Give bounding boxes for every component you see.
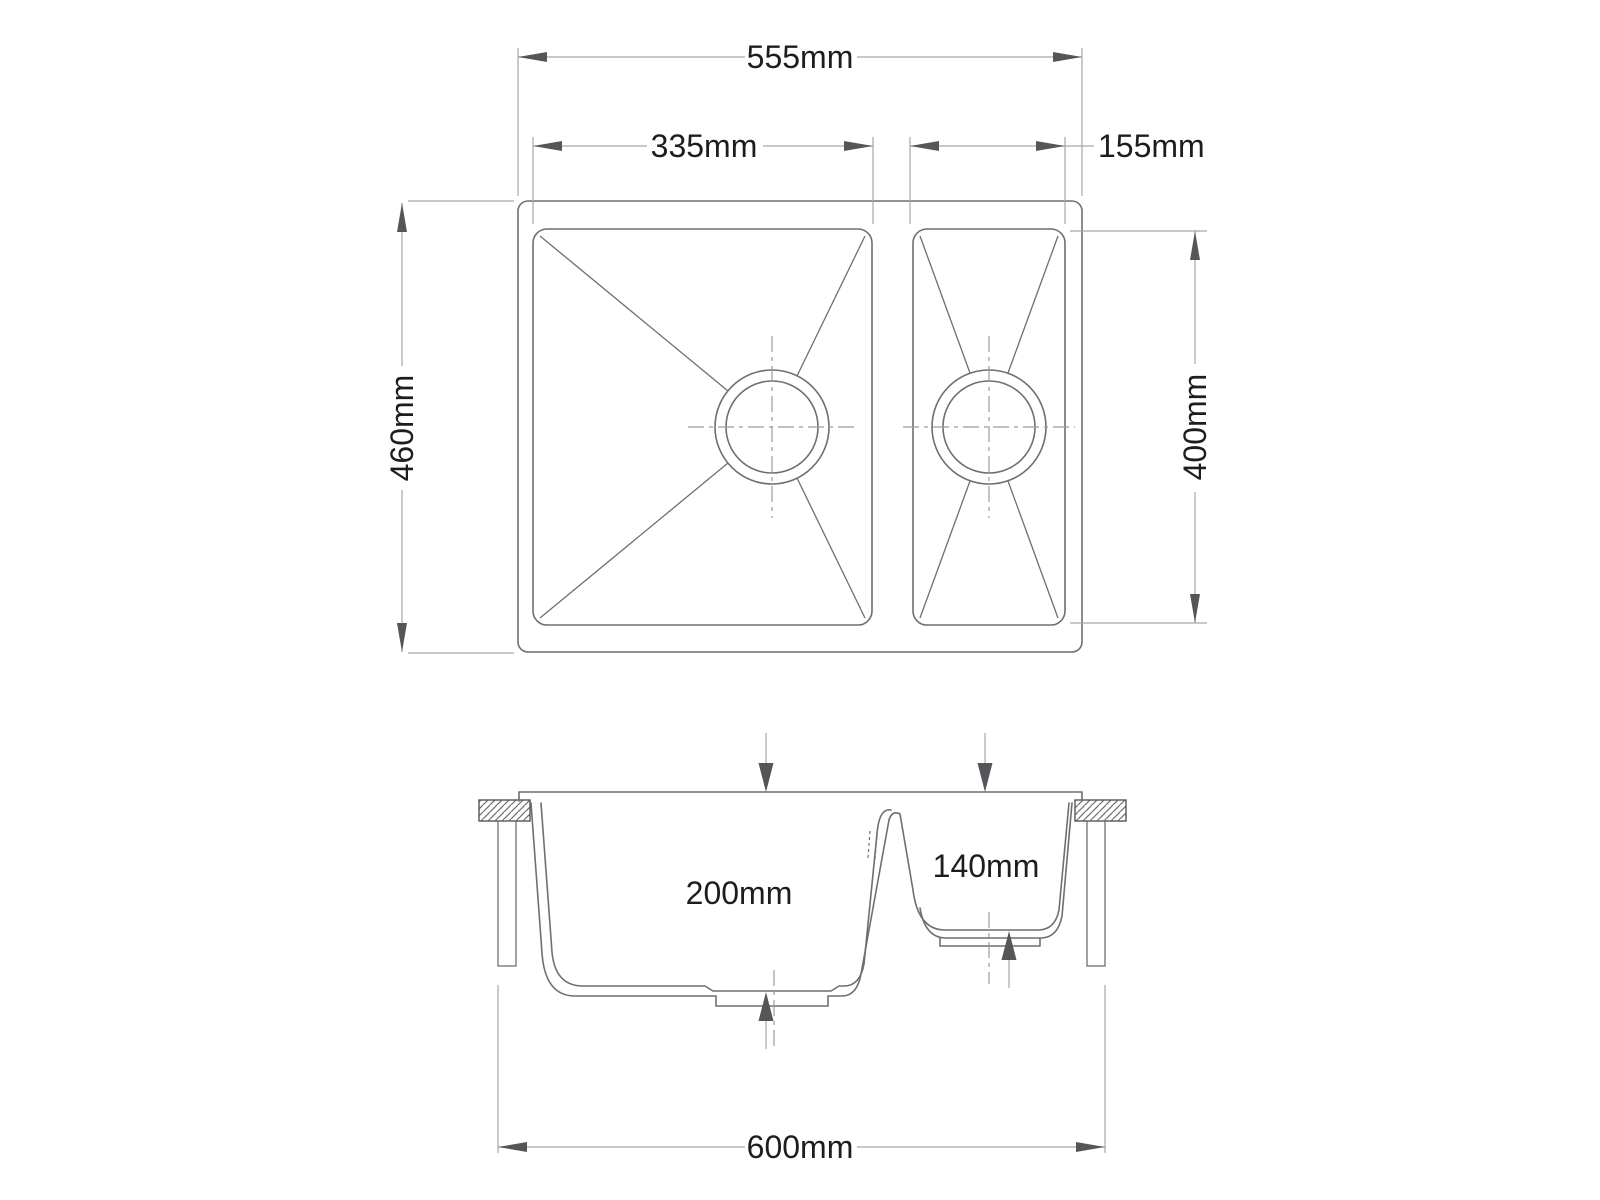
sink-technical-drawing: 555mm 335mm 155mm 460mm [0,0,1600,1200]
overflow-hidden-line [868,831,870,858]
dim-label-bowl-front-to-back: 400mm [1177,374,1213,481]
countertop-section-right [1075,800,1126,821]
dim-label-overall-depth: 460mm [384,375,420,482]
dim-label-overall-length: 600mm [747,1129,854,1165]
dim-second-bowl-width: 155mm [910,128,1205,164]
countertop-section-left [479,800,530,821]
main-bowl-drain [688,336,858,518]
dim-overall-width: 555mm [518,39,1082,75]
dim-main-bowl-width: 335mm [533,128,873,164]
dim-overall-length: 600mm [498,985,1105,1165]
dim-label-second-bowl-width: 155mm [1098,128,1205,164]
dim-label-overall-width: 555mm [747,39,854,75]
top-view [518,201,1082,652]
dim-label-main-bowl-depth: 200mm [686,875,793,911]
dim-label-second-bowl-depth: 140mm [933,848,1040,884]
drawing-canvas: 555mm 335mm 155mm 460mm [0,0,1600,1200]
second-bowl-drain-boss [940,938,1040,946]
dim-label-main-bowl-width: 335mm [651,128,758,164]
dim-bowl-front-to-back: 400mm [1177,231,1213,623]
cabinet-panel-left [498,821,516,966]
sink-outer-profile [531,803,1069,1006]
section-view: 200mm 140mm [479,733,1126,1049]
top-view-dimensions: 555mm 335mm 155mm 460mm [384,39,1213,653]
cabinet-panel-right [1087,821,1105,966]
second-bowl-drain [903,336,1075,518]
dim-overall-depth: 460mm [384,203,420,652]
